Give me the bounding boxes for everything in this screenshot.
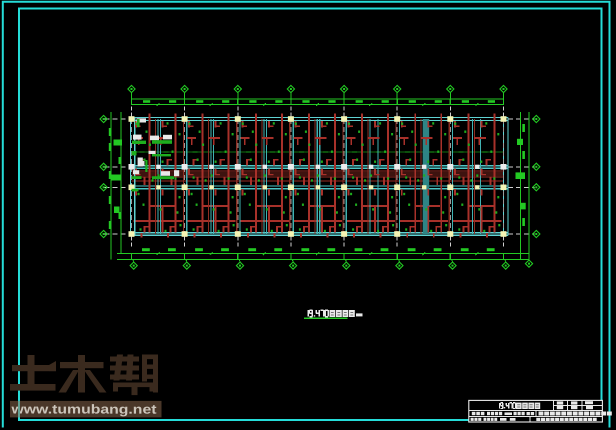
svg-text:www.tumubang.net: www.tumubang.net	[10, 401, 157, 416]
